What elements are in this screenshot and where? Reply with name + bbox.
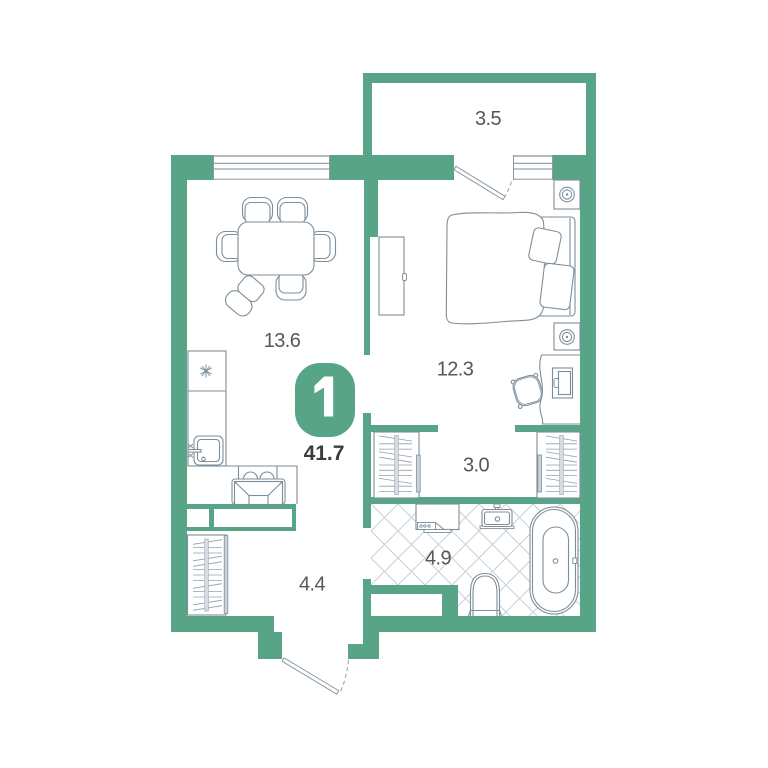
svg-text:4.9: 4.9 <box>425 548 451 570</box>
svg-text:4.4: 4.4 <box>299 574 325 596</box>
svg-text:3.0: 3.0 <box>463 455 489 477</box>
svg-text:13.6: 13.6 <box>264 330 301 352</box>
svg-text:3.5: 3.5 <box>475 108 501 130</box>
svg-text:12.3: 12.3 <box>437 359 474 381</box>
svg-text:41.7: 41.7 <box>304 442 345 465</box>
